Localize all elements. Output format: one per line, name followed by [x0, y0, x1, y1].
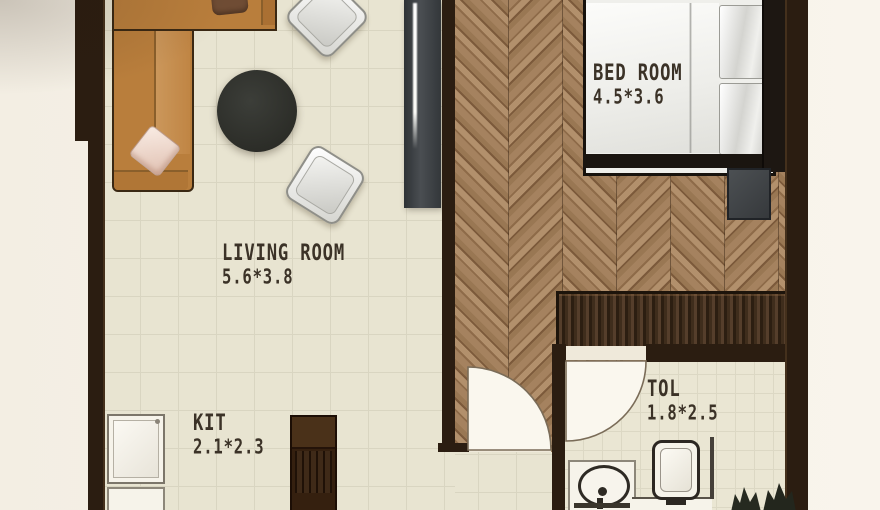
- living-room-name: LIVING ROOM: [222, 240, 345, 265]
- toilet-dims: 1.8*2.5: [647, 401, 718, 424]
- doors-plants-overlay: [0, 0, 880, 510]
- plant-icon: [763, 483, 796, 510]
- kitchen-dims: 2.1*2.3: [193, 435, 264, 458]
- kitchen-name: KIT: [193, 410, 227, 435]
- living-room-dims: 5.6*3.8: [222, 265, 293, 288]
- door-arc-icon: [468, 367, 551, 450]
- door-arc-icon: [566, 361, 646, 441]
- floor-plan: BED ROOM 4.5*3.6: [0, 0, 880, 510]
- living-room-label: LIVING ROOM 5.6*3.8: [222, 241, 372, 286]
- toilet-name: TOL: [647, 376, 681, 401]
- plant-icon: [731, 487, 761, 510]
- toilet-label: TOL 1.8*2.5: [647, 377, 734, 422]
- kitchen-label: KIT 2.1*2.3: [193, 411, 280, 456]
